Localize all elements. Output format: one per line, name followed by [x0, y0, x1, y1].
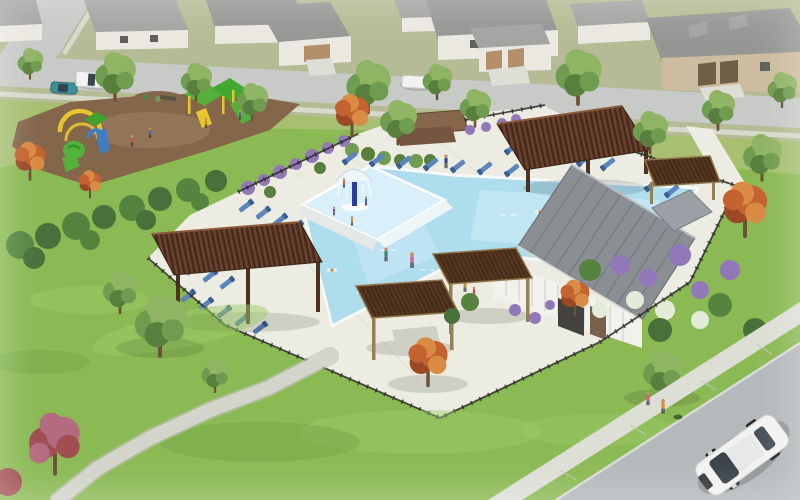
- rendering-canvas: Aerial watercolor-style architectural re…: [0, 0, 800, 500]
- small-dog: [674, 415, 683, 420]
- rendering-stage: Aerial watercolor-style architectural re…: [0, 0, 800, 500]
